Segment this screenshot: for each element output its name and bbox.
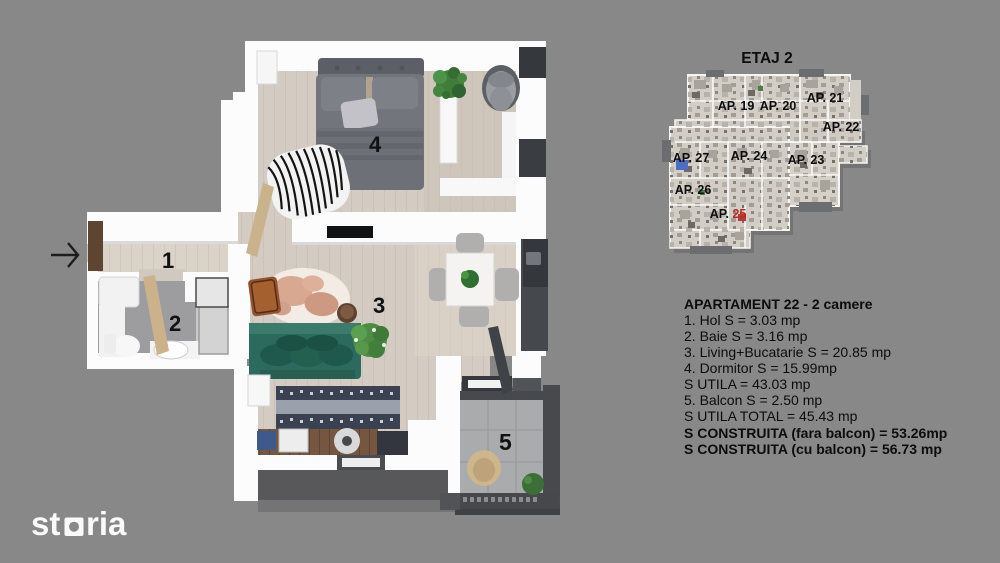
svg-text:S CONSTRUITA (fara balcon) = 5: S CONSTRUITA (fara balcon) = 53.26mp: [684, 425, 947, 441]
svg-text:AP. 24: AP. 24: [731, 149, 768, 163]
svg-text:1. Hol S = 3.03 mp: 1. Hol S = 3.03 mp: [684, 312, 801, 328]
svg-text:AP. 25: AP. 25: [710, 207, 747, 221]
svg-text:AP. 19: AP. 19: [718, 99, 755, 113]
svg-text:S CONSTRUITA (cu balcon) = 56.: S CONSTRUITA (cu balcon) = 56.73 mp: [684, 441, 942, 457]
svg-text:3: 3: [373, 293, 385, 318]
svg-text:AP. 21: AP. 21: [807, 91, 844, 105]
svg-text:5. Balcon S = 2.50 mp: 5. Balcon S = 2.50 mp: [684, 392, 822, 408]
svg-text:AP. 20: AP. 20: [760, 99, 797, 113]
svg-text:4: 4: [369, 132, 382, 157]
svg-text:st: st: [31, 505, 60, 542]
svg-text:AP. 26: AP. 26: [675, 183, 712, 197]
svg-text:S UTILA TOTAL = 45.43 mp: S UTILA TOTAL = 45.43 mp: [684, 408, 858, 424]
svg-text:2: 2: [169, 311, 181, 336]
svg-text:AP. 22: AP. 22: [823, 120, 860, 134]
svg-text:2. Baie S = 3.16 mp: 2. Baie S = 3.16 mp: [684, 328, 808, 344]
svg-text:1: 1: [162, 248, 174, 273]
svg-text:ETAJ 2: ETAJ 2: [741, 50, 792, 67]
svg-text:3. Living+Bucatarie S = 20.85: 3. Living+Bucatarie S = 20.85 mp: [684, 344, 891, 360]
svg-text:APARTAMENT 22 - 2 camere: APARTAMENT 22 - 2 camere: [684, 296, 873, 312]
svg-text:AP. 23: AP. 23: [788, 153, 825, 167]
svg-text:AP. 27: AP. 27: [673, 151, 710, 165]
svg-text:ria: ria: [86, 505, 127, 542]
svg-text:5: 5: [499, 429, 512, 455]
svg-text:S UTILA = 43.03 mp: S UTILA = 43.03 mp: [684, 376, 811, 392]
svg-text:4. Dormitor S = 15.99mp: 4. Dormitor S = 15.99mp: [684, 360, 837, 376]
